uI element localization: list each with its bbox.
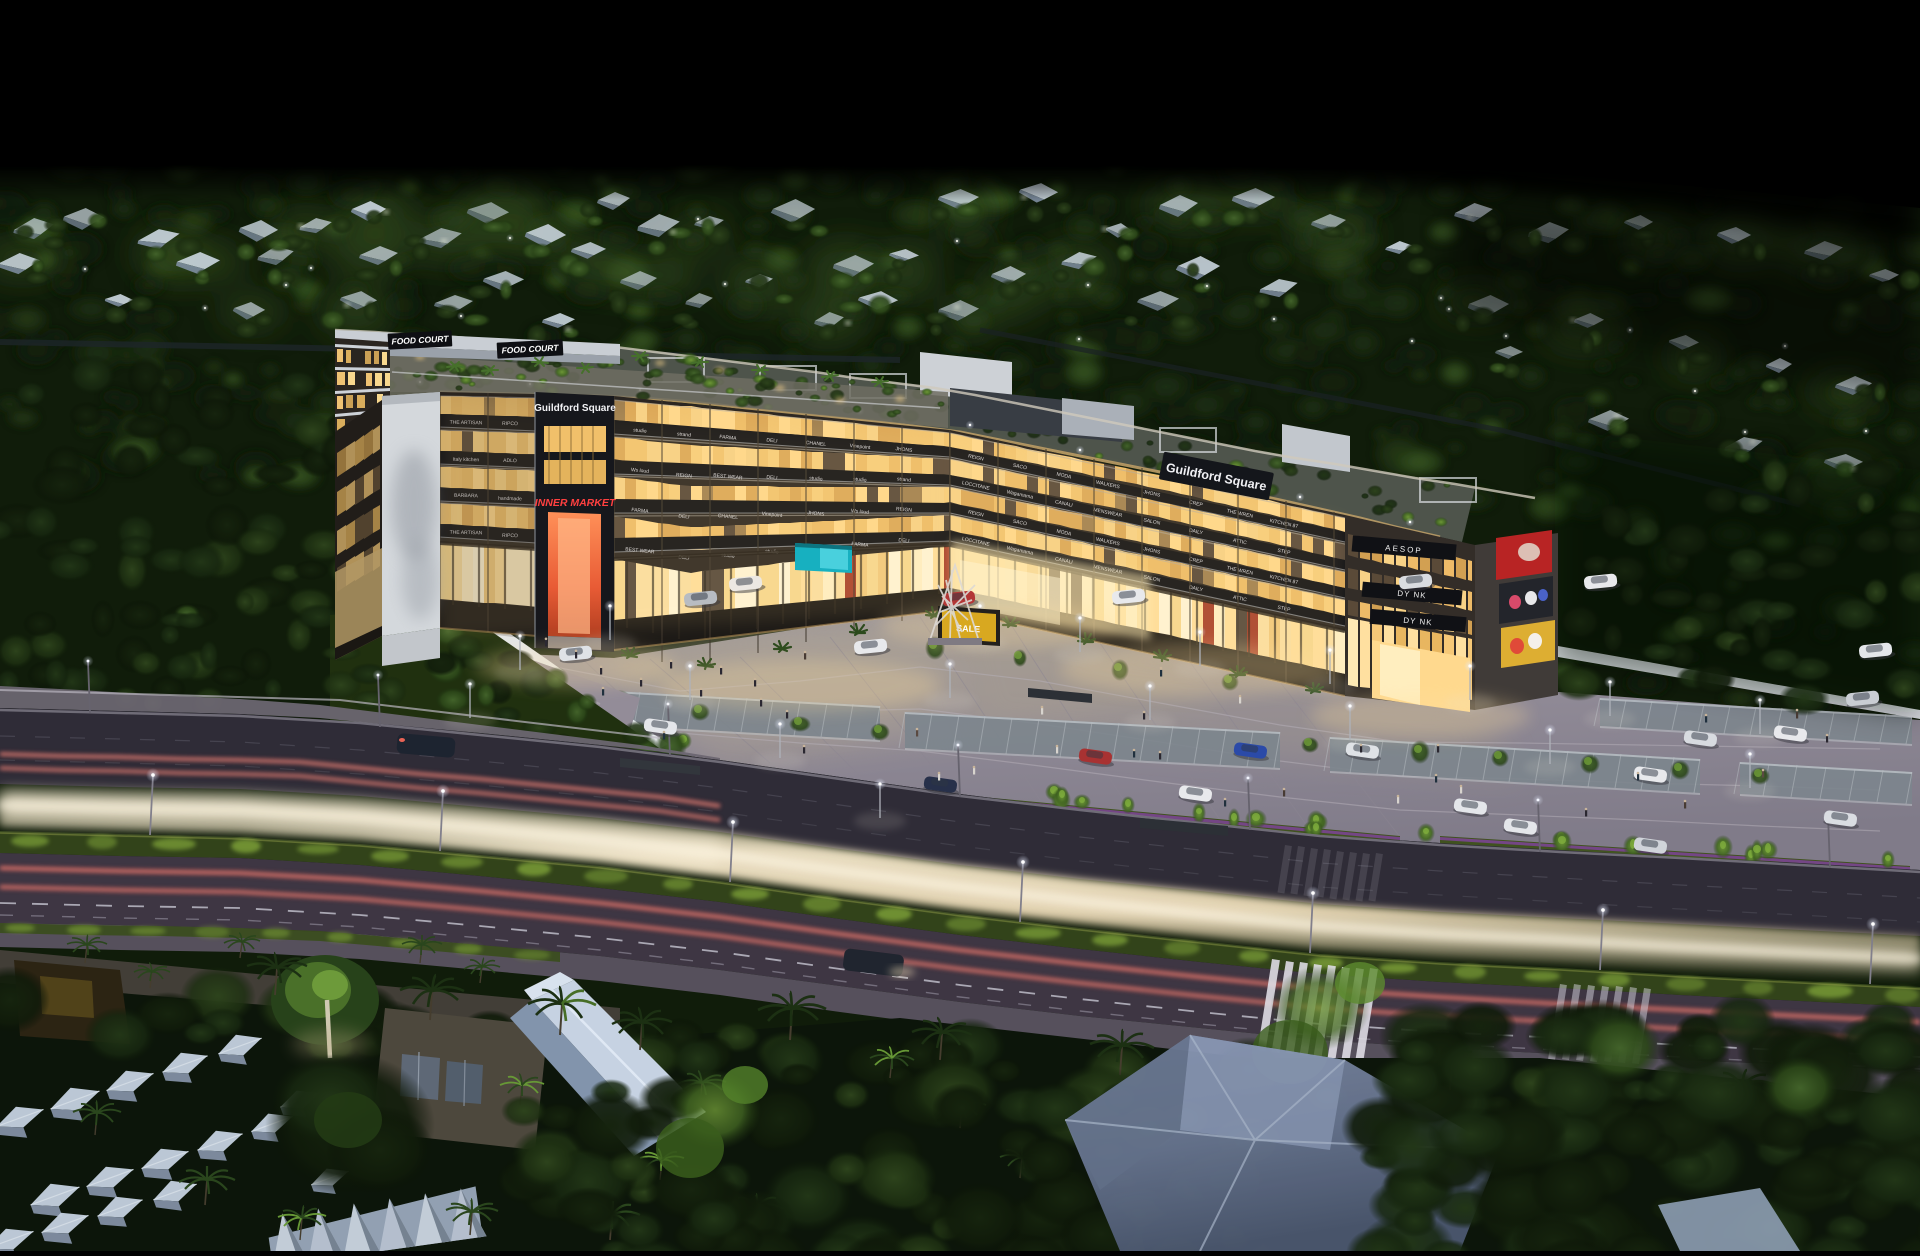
svg-text:INNER MARKET: INNER MARKET: [535, 497, 617, 509]
svg-text:Guildford Square: Guildford Square: [534, 403, 616, 414]
